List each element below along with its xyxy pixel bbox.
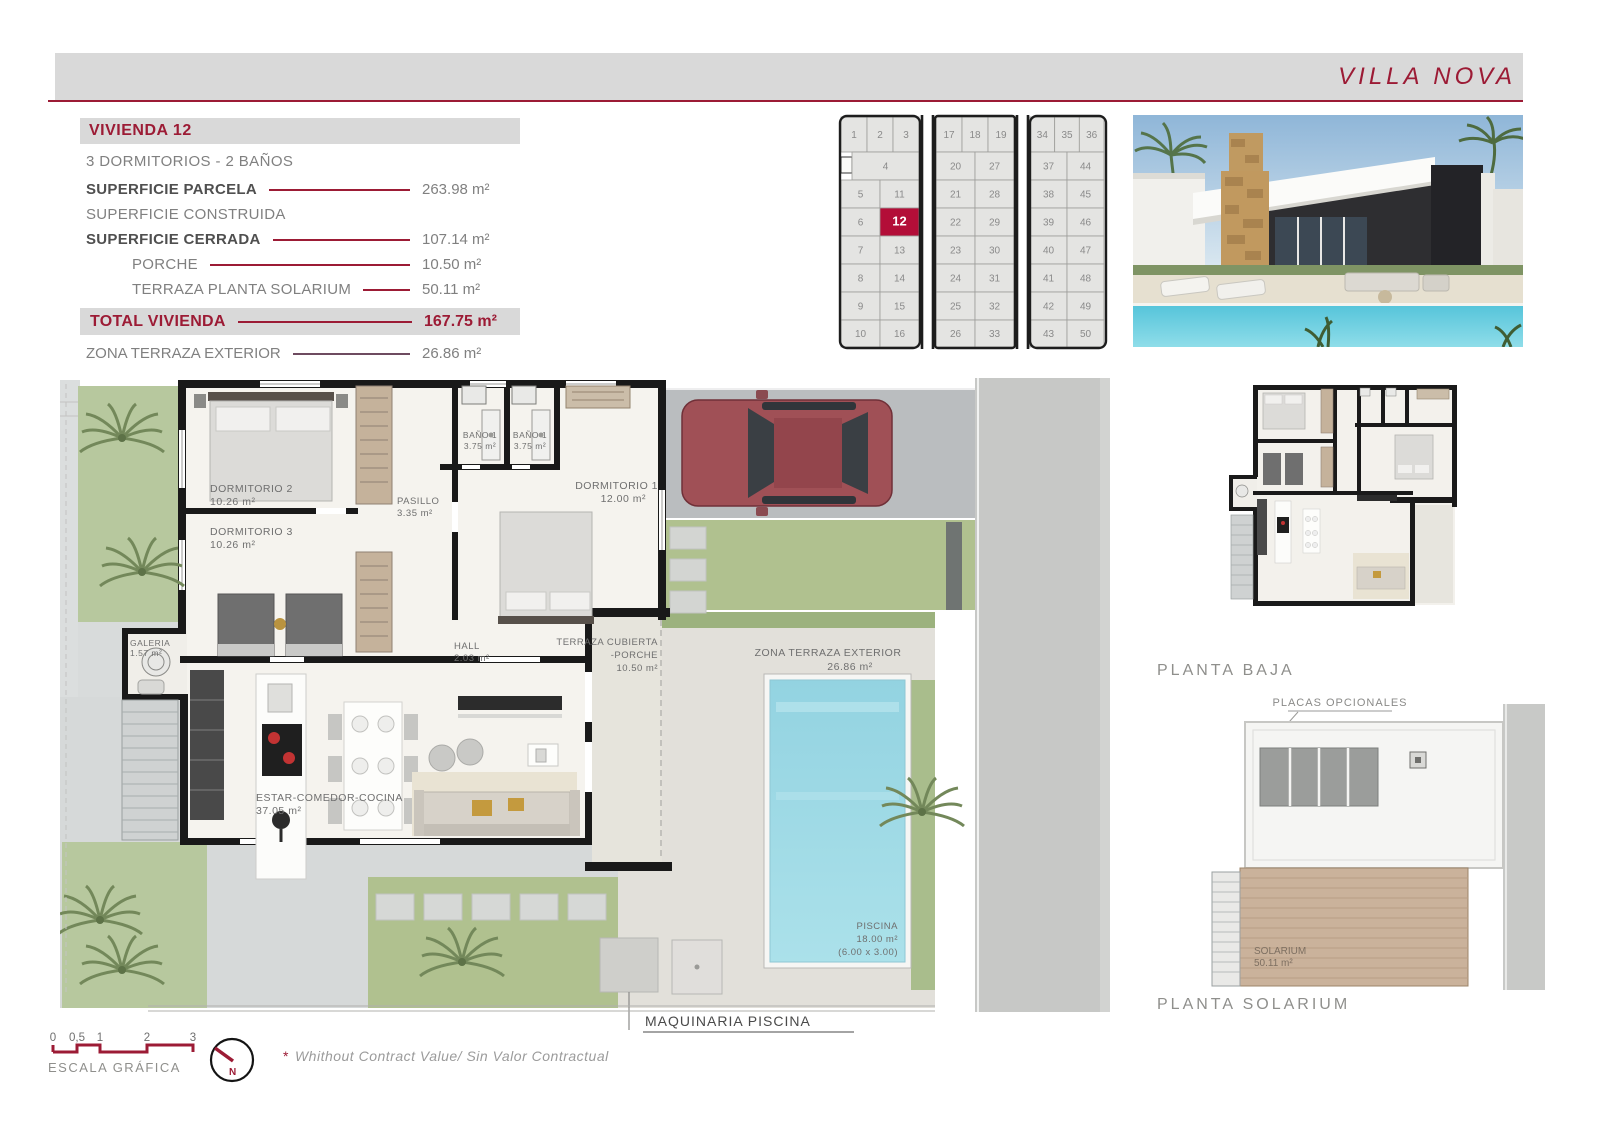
plot-number: 46 xyxy=(1080,218,1092,229)
total-leader-line xyxy=(238,321,412,323)
scale-bar: 00,5123 xyxy=(45,1030,215,1064)
plot-number: 42 xyxy=(1043,302,1055,313)
plot-number: 9 xyxy=(858,302,864,313)
plot-number: 40 xyxy=(1043,246,1055,257)
plot-number: 30 xyxy=(989,246,1001,257)
spec-leader-line xyxy=(273,239,410,241)
plot-number: 23 xyxy=(950,246,962,257)
left-garden xyxy=(78,386,178,622)
plot-number: 19 xyxy=(995,130,1007,141)
plot-number: 10 xyxy=(855,329,867,340)
spec-label: PORCHE xyxy=(132,256,198,273)
plot-number: 37 xyxy=(1043,162,1055,173)
solarium-stairs xyxy=(1212,872,1240,986)
room-label-estar: ESTAR-COMEDOR-COCINA xyxy=(256,792,403,804)
placas-label: PLACAS OPCIONALES xyxy=(1273,697,1408,709)
plot-number: 11 xyxy=(894,190,905,201)
hedge-strip xyxy=(660,612,935,628)
scale-tick: 0 xyxy=(50,1032,56,1044)
spec-row: SUPERFICIE PARCELA263.98 m² xyxy=(86,177,510,202)
solarium-room-area: 50.11 m² xyxy=(1254,958,1293,969)
scale-tick: 1 xyxy=(97,1032,103,1044)
header-rule xyxy=(48,100,1523,102)
plot-number: 48 xyxy=(1080,274,1092,285)
spec-value: 107.14 m² xyxy=(422,231,510,248)
maquinaria-label: MAQUINARIA PISCINA xyxy=(645,1013,811,1029)
photo-right-wall xyxy=(1493,189,1523,277)
room-label-dormitorio2: DORMITORIO 2 xyxy=(210,483,293,495)
planta-solarium-plan: PLACAS OPCIONALES SOLARIUM 50.11 m² xyxy=(1198,686,1548,1006)
photo-white-column xyxy=(1481,173,1495,277)
room-label-galeria: GALERIA xyxy=(130,638,170,648)
spec-leader-line xyxy=(363,289,410,291)
room-label-pasillo: PASILLO xyxy=(397,496,439,507)
contract-note: *Whithout Contract Value/ Sin Valor Cont… xyxy=(283,1048,609,1064)
solarium-room-label: SOLARIUM xyxy=(1254,946,1306,957)
plot-number: 41 xyxy=(1043,274,1055,285)
room-area-pasillo: 3.35 m² xyxy=(397,508,433,519)
spec-row: SUPERFICIE CONSTRUIDA xyxy=(86,202,510,227)
plot-number: 22 xyxy=(950,218,962,229)
plot-number: 50 xyxy=(1080,329,1092,340)
spec-label: SUPERFICIE CONSTRUIDA xyxy=(86,206,286,223)
drive-stones xyxy=(670,527,706,613)
label-zona-terraza: ZONA TERRAZA EXTERIOR xyxy=(755,647,902,659)
plot-number: 45 xyxy=(1080,190,1092,201)
main-floor-plan: DORMITORIO 2 10.26 m² DORMITORIO 3 10.26… xyxy=(60,372,1110,1045)
note-asterisk: * xyxy=(283,1048,289,1064)
spec-row: TERRAZA PLANTA SOLARIUM50.11 m² xyxy=(86,277,510,302)
plot-number: 18 xyxy=(969,130,981,141)
room-area-porche: 10.50 m² xyxy=(617,663,659,674)
scale-tick: 2 xyxy=(144,1032,150,1044)
plot-number: 44 xyxy=(1080,162,1092,173)
spec-label: SUPERFICIE PARCELA xyxy=(86,181,257,198)
plot-number: 12 xyxy=(892,214,906,229)
plot-number: 36 xyxy=(1086,130,1098,141)
pool-dims: (6.00 x 3.00) xyxy=(838,947,898,958)
compass-north: N xyxy=(229,1067,236,1078)
plot-number: 28 xyxy=(989,190,1001,201)
road xyxy=(975,378,1110,1012)
room-area-bano1b: 3.75 m² xyxy=(514,441,546,451)
plot-number: 7 xyxy=(858,246,864,257)
spec-label: SUPERFICIE CERRADA xyxy=(86,231,261,248)
plot-number: 16 xyxy=(894,329,906,340)
plot-number: 5 xyxy=(858,190,864,201)
room-label-hall: HALL xyxy=(454,641,480,652)
spec-label: TERRAZA PLANTA SOLARIUM xyxy=(132,281,351,298)
room-label-terraza-cubierta: TERRAZA CUBIERTA xyxy=(556,637,658,648)
zona-terraza-row: ZONA TERRAZA EXTERIOR 26.86 m² xyxy=(86,341,510,366)
room-area-dormitorio2: 10.26 m² xyxy=(210,496,255,508)
plot-number: 24 xyxy=(950,274,962,285)
spec-row: PORCHE10.50 m² xyxy=(86,252,510,277)
plot-number: 15 xyxy=(894,302,906,313)
exterior-stairs xyxy=(122,700,178,840)
room-area-bano1a: 3.75 m² xyxy=(464,441,496,451)
plot-number: 14 xyxy=(894,274,906,285)
plot-number: 35 xyxy=(1061,130,1073,141)
room-area-dormitorio3: 10.26 m² xyxy=(210,539,255,551)
dining-table xyxy=(328,702,418,830)
zona-terraza-value: 26.86 m² xyxy=(422,345,510,362)
drive-garden xyxy=(662,520,975,610)
spec-leader-line xyxy=(210,264,410,266)
room-area-estar: 37.05 m² xyxy=(256,805,301,817)
zona-terraza-label: ZONA TERRAZA EXTERIOR xyxy=(86,345,281,362)
plot-number: 49 xyxy=(1080,302,1092,313)
planta-baja-plan xyxy=(1205,375,1505,660)
plot-number: 32 xyxy=(989,302,1001,313)
vivienda-header: VIVIENDA 12 xyxy=(80,118,520,144)
planta-solarium-label: PLANTA SOLARIUM xyxy=(1157,996,1350,1014)
vivienda-subtitle: 3 DORMITORIOS - 2 BAÑOS xyxy=(86,153,293,170)
room-label-dormitorio3: DORMITORIO 3 xyxy=(210,526,293,538)
room-label-dormitorio1: DORMITORIO 1 xyxy=(575,480,658,492)
road-edge xyxy=(1100,378,1110,1012)
plot-number: 21 xyxy=(950,190,962,201)
plot-number: 8 xyxy=(858,274,864,285)
spec-value: 50.11 m² xyxy=(422,281,510,298)
mini-porch xyxy=(1413,505,1453,603)
planta-baja-label: PLANTA BAJA xyxy=(1157,662,1295,680)
room-area-hall: 2.03 m² xyxy=(454,653,490,664)
total-value: 167.75 m² xyxy=(424,313,510,331)
solarium-road xyxy=(1503,704,1545,990)
plot-number: 2 xyxy=(877,130,883,141)
room-label-bano1b: BAÑO 1 xyxy=(513,430,547,440)
plot-number: 27 xyxy=(989,162,1001,173)
stepping-stones xyxy=(376,894,606,920)
pool-side-garden xyxy=(911,680,935,990)
plot-number: 25 xyxy=(950,302,962,313)
plot-number: 3 xyxy=(903,130,909,141)
room-label-bano1a: BAÑO 1 xyxy=(463,430,497,440)
compass-needle xyxy=(215,1048,233,1061)
scale-bar-line xyxy=(53,1045,193,1052)
villa-photo xyxy=(1133,115,1523,347)
plot-number: 13 xyxy=(894,246,906,257)
area-zona-terraza: 26.86 m² xyxy=(827,661,872,673)
car xyxy=(682,390,892,516)
room-area-dormitorio1: 12.00 m² xyxy=(601,493,646,505)
total-label: TOTAL VIVIENDA xyxy=(90,313,226,331)
spec-rows: SUPERFICIE PARCELA263.98 m²SUPERFICIE CO… xyxy=(86,177,510,302)
site-plan-grid: 1234511612713814915101617181920272128222… xyxy=(838,114,1108,350)
scale-tick: 0,5 xyxy=(69,1032,85,1044)
plot-number: 20 xyxy=(950,162,962,173)
plot-number: 1 xyxy=(851,130,857,141)
pool-label: PISCINA xyxy=(856,921,898,932)
photo-left-wall-edge xyxy=(1133,173,1205,179)
note-text: Whithout Contract Value/ Sin Valor Contr… xyxy=(295,1048,609,1064)
plot-number: 31 xyxy=(989,274,1001,285)
spec-row: SUPERFICIE CERRADA107.14 m² xyxy=(86,227,510,252)
plot-number: 29 xyxy=(989,218,1001,229)
header-band xyxy=(55,53,1523,100)
plot-number: 4 xyxy=(883,162,889,173)
photo-pool-coping xyxy=(1133,303,1523,306)
pool-area: 18.00 m² xyxy=(857,934,899,945)
scale-tick: 3 xyxy=(190,1032,196,1044)
plot-number: 34 xyxy=(1037,130,1049,141)
compass-icon: N xyxy=(205,1033,259,1087)
room-area-galeria: 1.57 m² xyxy=(130,648,162,658)
plot-number: 33 xyxy=(989,329,1001,340)
plot-number: 38 xyxy=(1043,190,1055,201)
photo-dark-block xyxy=(1431,165,1483,277)
plot-number: 26 xyxy=(950,329,962,340)
plot-number: 6 xyxy=(858,218,864,229)
spec-value: 263.98 m² xyxy=(422,181,510,198)
page-title: VILLA NOVA xyxy=(1338,63,1516,91)
scale-label: ESCALA GRÁFICA xyxy=(48,1060,181,1075)
spec-leader-line xyxy=(269,189,410,191)
room-label-porche: -PORCHE xyxy=(611,650,658,661)
spec-value: 10.50 m² xyxy=(422,256,510,273)
side-gate xyxy=(946,522,962,610)
plot-number: 39 xyxy=(1043,218,1055,229)
solar-panels xyxy=(1260,748,1378,806)
corner-garden xyxy=(62,842,207,1008)
plot-number: 43 xyxy=(1043,329,1055,340)
plot-number: 17 xyxy=(943,130,955,141)
total-row: TOTAL VIVIENDA 167.75 m² xyxy=(80,308,520,335)
plot-number: 47 xyxy=(1080,246,1092,257)
zona-terraza-leader xyxy=(293,353,410,355)
plot-entry-marker xyxy=(841,157,852,173)
